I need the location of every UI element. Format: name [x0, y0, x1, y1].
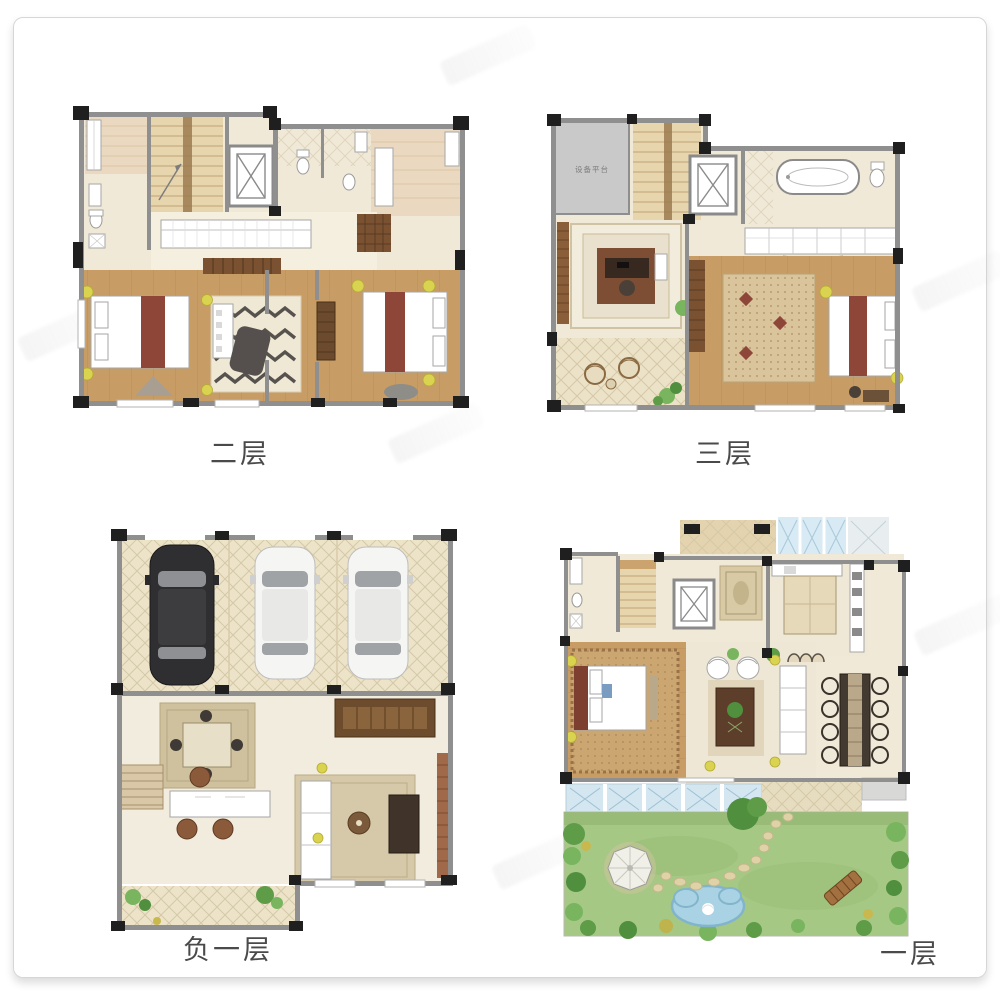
- staircase: [151, 116, 223, 212]
- desk: [170, 791, 270, 817]
- living-room: [686, 642, 816, 784]
- floor-plan-third-floor: 设备平台: [545, 108, 905, 413]
- floor-label-third: 三层: [645, 432, 805, 471]
- garden: [563, 797, 909, 941]
- pond: [672, 886, 744, 926]
- gazebo-parasol: [604, 842, 656, 894]
- kitchen: [768, 560, 868, 656]
- floor-plan-basement: [105, 523, 465, 935]
- elevator-shaft: [229, 146, 273, 206]
- floor-label-second: 二层: [160, 432, 320, 471]
- bedroom-top-right: [371, 128, 463, 216]
- master-bathroom: [741, 150, 899, 224]
- watermark: [913, 594, 1000, 657]
- lower-stairs: [121, 765, 163, 809]
- floor-plan-first-floor: [558, 516, 913, 942]
- watermark: [439, 24, 537, 87]
- patio: [122, 886, 295, 930]
- floor-label-first: 一层: [830, 932, 990, 971]
- white-car: [343, 547, 413, 679]
- bathroom-left: [85, 178, 147, 252]
- black-car: [145, 545, 219, 685]
- balcony: [555, 338, 685, 406]
- cloak-room: [85, 116, 147, 174]
- entry-rug: [720, 566, 762, 620]
- floor-plan-second-floor: [65, 100, 475, 420]
- glass-skylight: [777, 516, 890, 560]
- equipment-platform-label: 设备平台: [575, 164, 609, 174]
- staircase: [618, 560, 656, 628]
- bedroom: [566, 642, 687, 780]
- equipment-platform: 设备平台: [555, 122, 629, 214]
- elevator-shaft: [690, 156, 736, 214]
- game-table: [183, 723, 231, 767]
- floor-label-basement: 负一层: [148, 928, 308, 967]
- shelf-strip: [437, 753, 449, 878]
- sofa: [301, 781, 331, 879]
- recreation-room: [117, 696, 453, 885]
- bathrooms-top-right: [277, 128, 371, 216]
- white-car: [250, 547, 320, 679]
- utility-bathroom: [566, 554, 616, 636]
- elevator-shaft: [674, 580, 714, 628]
- study: [557, 222, 695, 328]
- watermark: [911, 250, 1000, 313]
- tv: [389, 795, 419, 853]
- master-bedroom: [687, 256, 903, 408]
